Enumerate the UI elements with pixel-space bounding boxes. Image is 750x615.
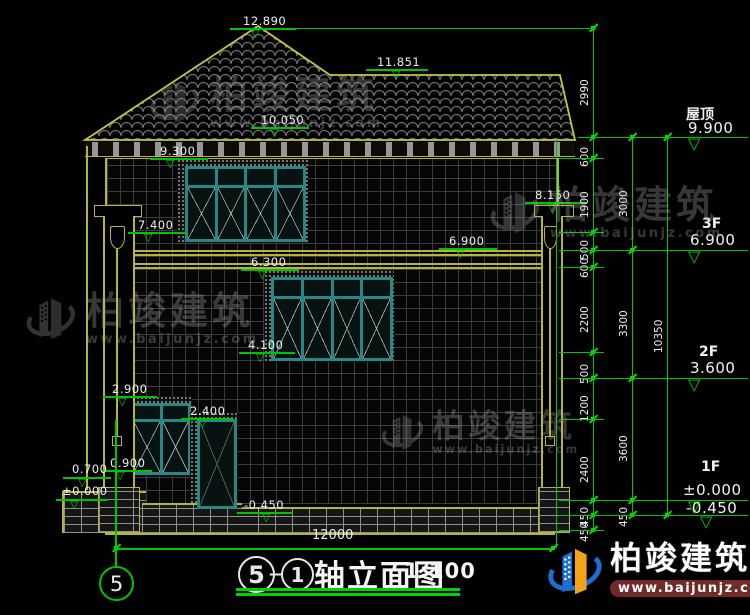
- elevation-mark-line: [241, 269, 299, 271]
- extension-line: [559, 250, 748, 251]
- elevation-mark-triangle-icon: ▽: [70, 500, 78, 510]
- dim-label: 1900: [579, 182, 591, 218]
- elevation-mark-label: 7.400: [138, 218, 173, 232]
- dim-label: 450: [579, 513, 591, 542]
- dim-chain-line: [632, 137, 633, 515]
- overall-dim-line: [116, 548, 553, 550]
- footer-logo: 柏竣建筑 www.baijunjz.com: [543, 540, 750, 604]
- extension-line: [559, 232, 604, 233]
- floor-marker-triangle-icon: ▽: [688, 137, 700, 151]
- elevation-mark-triangle-icon: ▽: [456, 249, 464, 259]
- elevation-mark-triangle-icon: ▽: [256, 353, 264, 363]
- elevation-mark-triangle-icon: ▽: [258, 270, 266, 280]
- elevation-mark-triangle-icon: ▽: [118, 397, 126, 407]
- extension-line: [559, 158, 604, 159]
- brand-logo-icon: [543, 540, 605, 604]
- dim-label: 2200: [579, 297, 591, 333]
- elevation-mark-label: -0.450: [244, 498, 284, 512]
- elevation-mark-line: [102, 470, 152, 472]
- elevation-mark-label: 6.300: [251, 255, 286, 269]
- dim-label: 3600: [618, 426, 630, 462]
- elevation-mark-triangle-icon: ▽: [262, 513, 270, 523]
- axis-bubble-5: 5: [99, 566, 134, 601]
- dim-chain-line: [667, 137, 668, 515]
- elevation-mark-line: [239, 352, 295, 354]
- elevation-mark-label: 12.890: [243, 14, 286, 28]
- extension-line: [559, 378, 748, 379]
- dim-label: 450: [618, 498, 630, 527]
- elevation-drawing-canvas: 12.890▽11.851▽10.050▽9.300▽8.150▽7.400▽6…: [0, 0, 750, 615]
- extension-line: [578, 137, 748, 138]
- elevation-mark-triangle-icon: ▽: [251, 29, 259, 39]
- dim-chain-line: [593, 28, 594, 530]
- elevation-mark-label: 8.150: [535, 188, 570, 202]
- dim-label: 3300: [618, 301, 630, 337]
- elevation-mark-label: 0.700: [72, 462, 107, 476]
- brand-url: www.baijunjz.com: [610, 580, 750, 597]
- elevation-mark-line: [56, 499, 108, 501]
- elevation-mark-line: [230, 28, 296, 30]
- dim-label: 1200: [579, 386, 591, 422]
- dim-label: 10350: [653, 310, 665, 353]
- elevation-mark-line: [63, 477, 111, 479]
- dim-label: 2990: [579, 70, 591, 106]
- floor-name-label: 1F: [701, 459, 720, 475]
- dim-label: 600: [579, 249, 591, 278]
- floor-marker-triangle-icon: ▽: [688, 378, 700, 392]
- floor-marker-triangle-icon: ▽: [700, 515, 712, 529]
- floor-name-label: 3F: [702, 216, 721, 232]
- extension-line: [559, 352, 604, 353]
- elevation-mark-label: 4.100: [248, 338, 283, 352]
- dim-label: 600: [579, 138, 591, 167]
- elevation-mark-label: 9.300: [160, 144, 195, 158]
- elevation-mark-triangle-icon: ▽: [116, 471, 124, 481]
- elevation-mark-triangle-icon: ▽: [198, 419, 206, 429]
- brand-name: 柏竣建筑: [610, 540, 750, 577]
- elevation-mark-triangle-icon: ▽: [166, 159, 174, 169]
- axis-line-right: [556, 140, 557, 548]
- elevation-mark-label: 2.400: [190, 404, 225, 418]
- extension-line: [559, 530, 604, 531]
- elevation-mark-line: [128, 232, 186, 234]
- dim-label: 500: [579, 355, 591, 384]
- elevation-mark-label: 6.900: [449, 234, 484, 248]
- dim-label: 2400: [579, 447, 591, 483]
- elevation-mark-line: [439, 248, 497, 250]
- elevation-mark-line: [150, 158, 208, 160]
- elevation-mark-line: [251, 127, 309, 129]
- elevation-mark-triangle-icon: ▽: [144, 233, 152, 243]
- extension-line: [559, 267, 604, 268]
- annotation-layer: 12.890▽11.851▽10.050▽9.300▽8.150▽7.400▽6…: [0, 0, 750, 615]
- axis-stem-left: [115, 420, 117, 566]
- elevation-mark-label: 11.851: [377, 55, 420, 69]
- extension-line: [559, 419, 604, 420]
- floor-marker-triangle-icon: ▽: [688, 250, 700, 264]
- dim-label: 3000: [618, 181, 630, 217]
- elevation-mark-label: 10.050: [261, 113, 304, 127]
- elevation-mark-triangle-icon: ▽: [392, 70, 400, 80]
- overall-dim-label: 12000: [312, 528, 353, 543]
- floor-name-label: 2F: [699, 344, 718, 360]
- elevation-mark-triangle-icon: ▽: [270, 128, 278, 138]
- elevation-mark-line: [181, 418, 233, 420]
- elevation-mark-label: 2.900: [112, 382, 147, 396]
- extension-line: [296, 28, 596, 29]
- elevation-mark-line: [103, 396, 157, 398]
- elevation-mark-label: ±0.000: [62, 484, 108, 498]
